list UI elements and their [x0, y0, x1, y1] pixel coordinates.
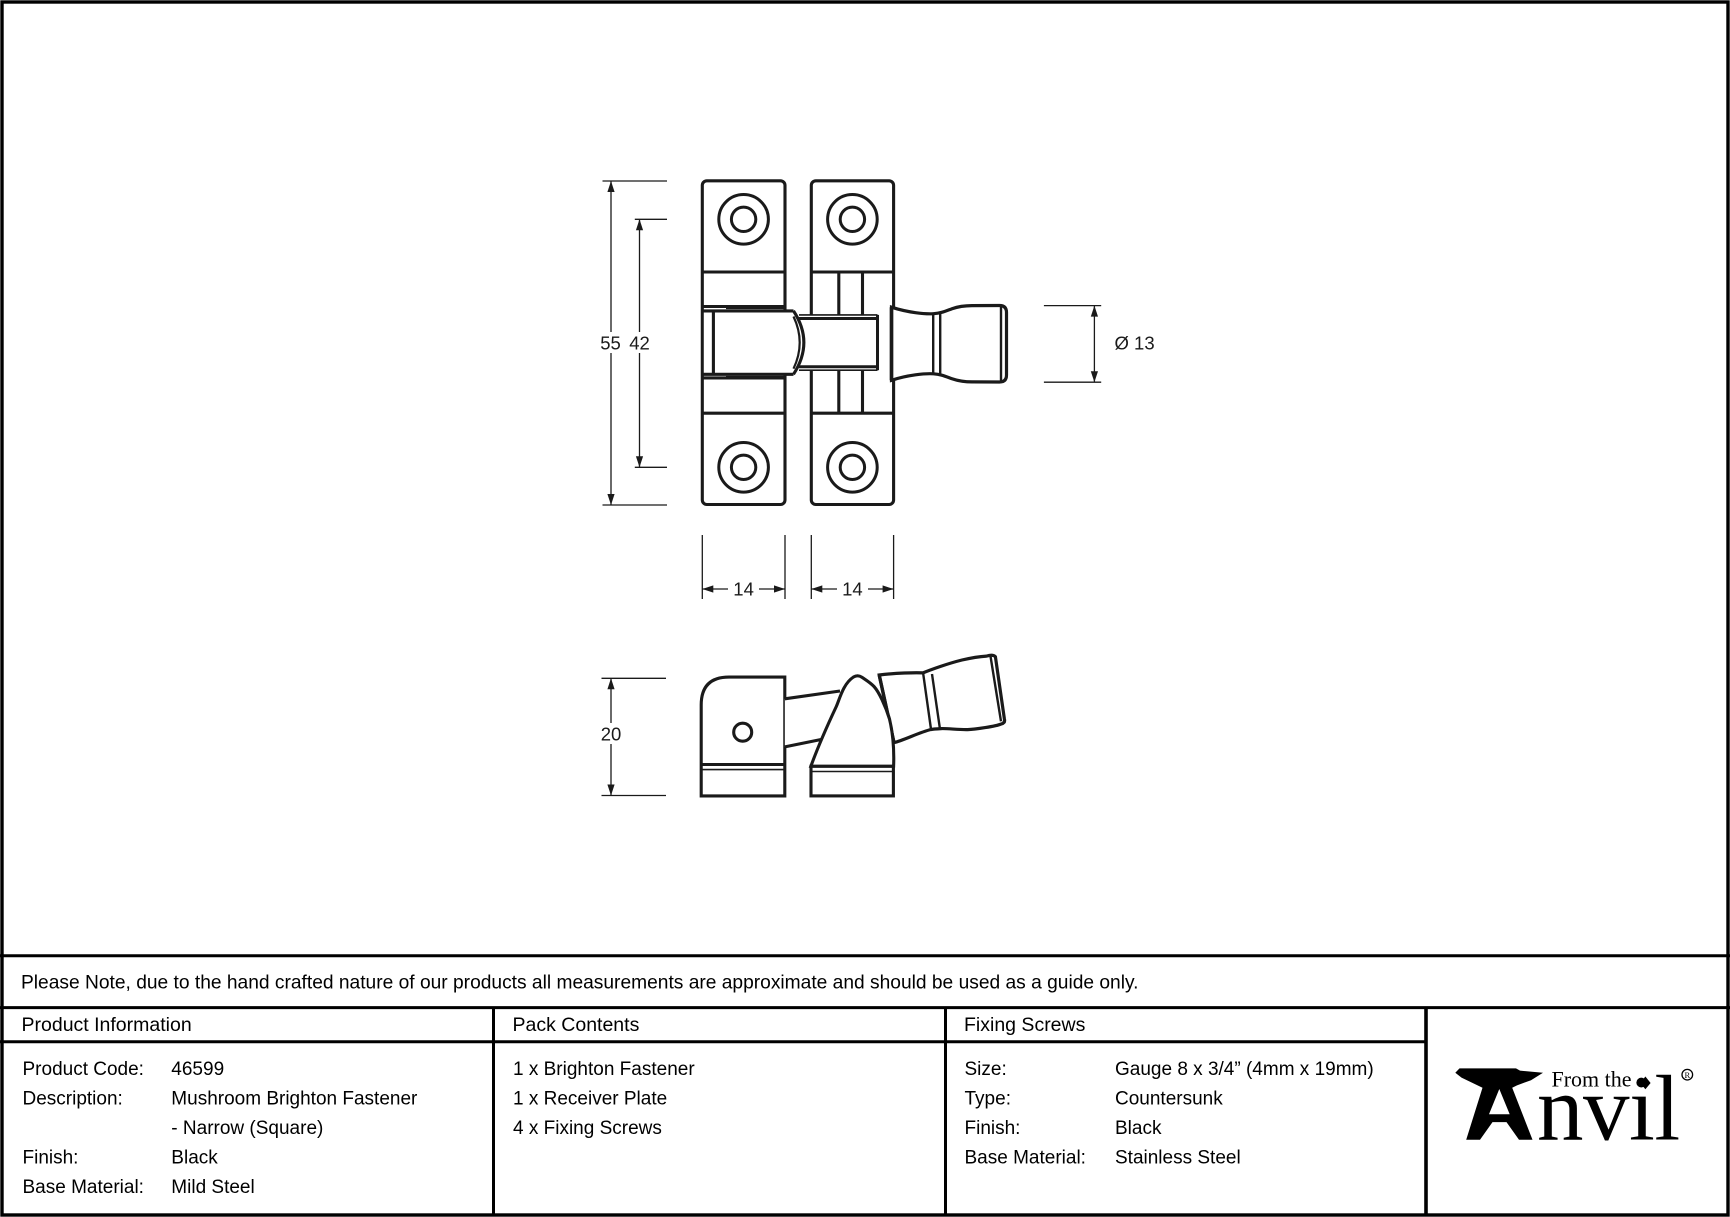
svg-text:Finish:: Finish: [23, 1148, 79, 1169]
svg-text:14: 14 [842, 579, 863, 600]
svg-text:Black: Black [171, 1148, 218, 1169]
svg-text:Gauge 8 x 3/4” (4mm x 19mm): Gauge 8 x 3/4” (4mm x 19mm) [1115, 1059, 1374, 1080]
svg-text:Type:: Type: [965, 1088, 1011, 1109]
svg-text:nvil: nvil [1537, 1058, 1680, 1161]
svg-text:- Narrow (Square): - Narrow (Square) [171, 1118, 323, 1139]
svg-text:46599: 46599 [171, 1059, 224, 1080]
svg-text:Fixing Screws: Fixing Screws [964, 1014, 1086, 1036]
svg-text:Stainless Steel: Stainless Steel [1115, 1148, 1241, 1169]
svg-text:Size:: Size: [965, 1059, 1007, 1080]
svg-text:1 x Receiver Plate: 1 x Receiver Plate [513, 1088, 667, 1109]
svg-text:Base Material:: Base Material: [965, 1148, 1086, 1169]
svg-text:Description:: Description: [23, 1088, 123, 1109]
svg-text:Finish:: Finish: [965, 1118, 1021, 1139]
svg-text:Mushroom Brighton Fastener: Mushroom Brighton Fastener [171, 1088, 418, 1109]
svg-text:Product Information: Product Information [22, 1014, 192, 1036]
svg-text:R: R [1684, 1070, 1690, 1080]
svg-text:Ø 13: Ø 13 [1115, 332, 1155, 353]
svg-text:1 x Brighton Fastener: 1 x Brighton Fastener [513, 1059, 695, 1080]
svg-text:Pack Contents: Pack Contents [513, 1014, 640, 1036]
svg-text:Mild Steel: Mild Steel [171, 1177, 254, 1198]
svg-text:4 x Fixing Screws: 4 x Fixing Screws [513, 1118, 662, 1139]
svg-text:55: 55 [600, 332, 621, 353]
svg-text:14: 14 [733, 579, 754, 600]
svg-text:20: 20 [601, 723, 622, 744]
svg-text:Black: Black [1115, 1118, 1162, 1139]
svg-text:Base Material:: Base Material: [23, 1177, 144, 1198]
svg-text:Please Note, due to the hand c: Please Note, due to the hand crafted nat… [21, 973, 1138, 994]
svg-text:42: 42 [629, 332, 650, 353]
svg-text:Countersunk: Countersunk [1115, 1088, 1223, 1109]
svg-text:Product Code:: Product Code: [23, 1059, 144, 1080]
